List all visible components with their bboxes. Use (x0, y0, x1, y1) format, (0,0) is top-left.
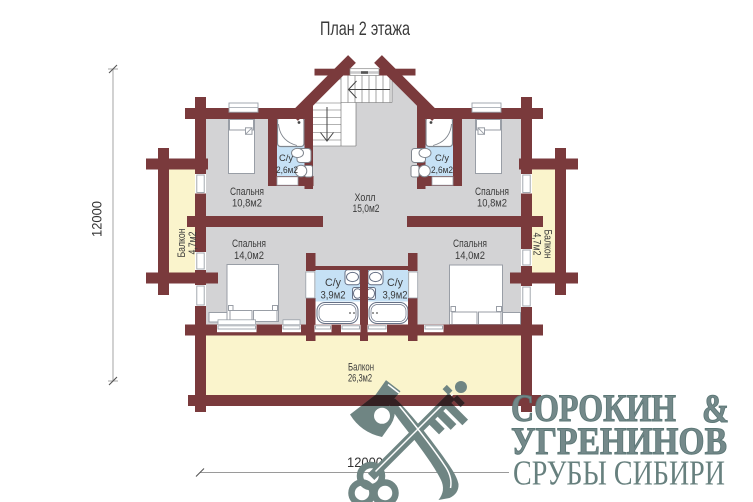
svg-text:С/у: С/у (387, 277, 403, 289)
svg-text:26,3м2: 26,3м2 (348, 373, 372, 385)
svg-text:15,0м2: 15,0м2 (353, 203, 380, 215)
svg-text:План 2 этажа: План 2 этажа (320, 18, 410, 40)
svg-text:3,9м2: 3,9м2 (321, 290, 346, 302)
svg-text:2,6м2: 2,6м2 (276, 165, 298, 176)
svg-text:Балкон4,7м2: Балкон4,7м2 (176, 229, 199, 258)
svg-text:Спальня: Спальня (232, 238, 266, 250)
svg-text:Спальня: Спальня (230, 186, 264, 198)
svg-text:С/у: С/у (435, 153, 449, 164)
svg-text:С/у: С/у (279, 153, 293, 164)
svg-text:12000: 12000 (90, 201, 105, 237)
svg-text:2,6м2: 2,6м2 (431, 165, 453, 176)
svg-text:Спальня: Спальня (475, 186, 509, 198)
svg-text:10,8м2: 10,8м2 (232, 198, 262, 210)
svg-text:3,9м2: 3,9м2 (383, 290, 408, 302)
svg-text:С/у: С/у (325, 277, 341, 289)
svg-text:СРУБЫ СИБИРИ: СРУБЫ СИБИРИ (513, 454, 725, 493)
svg-text:14,0м2: 14,0м2 (234, 250, 264, 262)
svg-text:Спальня: Спальня (453, 238, 487, 250)
svg-text:10,8м2: 10,8м2 (477, 198, 507, 210)
svg-text:14,0м2: 14,0м2 (455, 250, 485, 262)
svg-text:Балкон4,7м2: Балкон4,7м2 (531, 230, 554, 259)
